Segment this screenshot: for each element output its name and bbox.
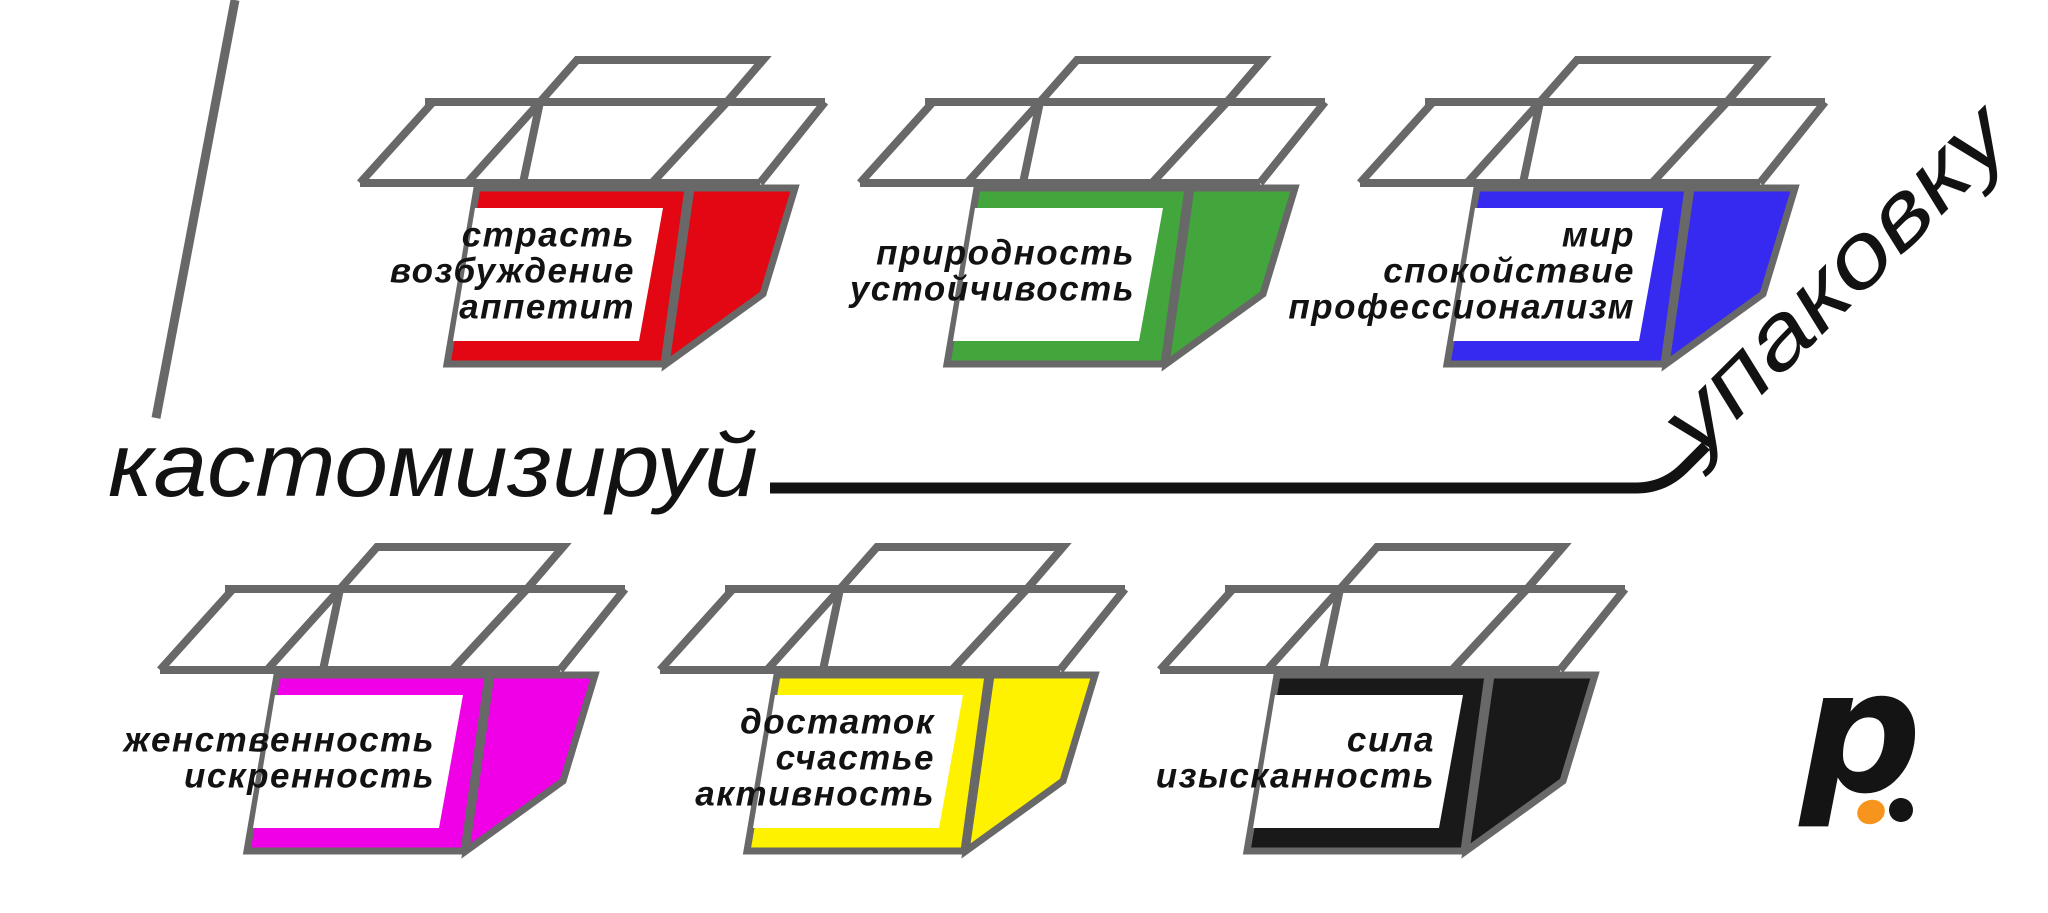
- open-box-flaps-outline: [360, 60, 825, 183]
- box-label-line: природность: [876, 234, 1135, 273]
- open-box-flaps-outline: [160, 547, 625, 670]
- box-black: сила изысканность: [1156, 547, 1625, 851]
- box-label-line: профессионализм: [1288, 288, 1635, 327]
- box-label-line: счастье: [776, 739, 935, 778]
- box-label-line: мир: [1562, 216, 1635, 255]
- box-label-line: женственность: [122, 721, 435, 760]
- open-box-flaps-outline: [860, 60, 1325, 183]
- box-magenta: женственность искренность: [122, 547, 625, 851]
- box-side-panel: [1166, 188, 1295, 364]
- box-label-line: сила: [1347, 721, 1435, 760]
- box-label-line: изысканность: [1156, 757, 1435, 796]
- box-label-line: спокойствие: [1383, 252, 1635, 291]
- box-side-panel: [966, 675, 1095, 851]
- box-red: страсть возбуждение аппетит: [360, 60, 825, 364]
- box-label-line: возбуждение: [390, 252, 635, 291]
- open-box-flaps-outline: [660, 547, 1125, 670]
- diagonal-accent-line: [156, 0, 235, 418]
- box-side-panel: [1466, 675, 1595, 851]
- box-label-line: страсть: [462, 216, 635, 255]
- box-label-line: активность: [695, 775, 935, 814]
- brand-logo: p: [1798, 634, 1922, 832]
- box-side-panel: [666, 188, 795, 364]
- open-box-flaps-outline: [1160, 547, 1625, 670]
- open-box-flaps-outline: [1360, 60, 1825, 183]
- box-side-panel: [466, 675, 595, 851]
- box-green: природность устойчивость: [848, 60, 1325, 364]
- box-label-line: искренность: [184, 757, 435, 796]
- poster-canvas: страсть возбуждение аппетит природность …: [0, 0, 2048, 913]
- box-yellow: достаток счастье активность: [660, 547, 1125, 851]
- box-label-line: достаток: [740, 703, 936, 742]
- box-label-line: устойчивость: [848, 270, 1135, 309]
- box-label-line: аппетит: [459, 288, 635, 327]
- headline-word-customize: кастомизируй: [108, 416, 758, 516]
- headline-underline: [770, 446, 1706, 488]
